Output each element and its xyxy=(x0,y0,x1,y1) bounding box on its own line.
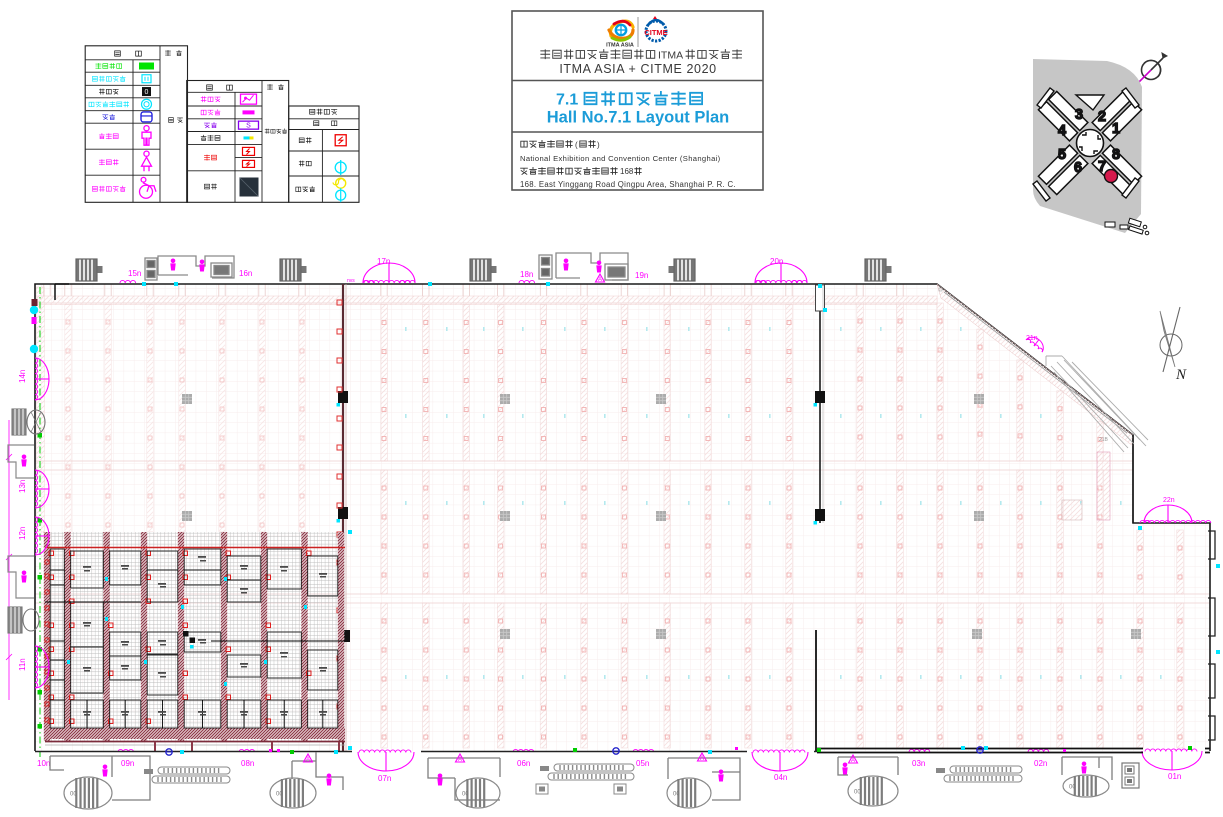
svg-text:8: 8 xyxy=(1112,147,1120,163)
svg-text:3: 3 xyxy=(1075,107,1083,123)
svg-text:168. East Yinggang Road Qingpu: 168. East Yinggang Road Qingpu Area, Sha… xyxy=(520,180,736,189)
svg-text:10n: 10n xyxy=(37,759,50,768)
svg-text:CITME: CITME xyxy=(644,28,667,37)
svg-text:00: 00 xyxy=(673,792,680,798)
svg-text:07n: 07n xyxy=(378,774,391,783)
svg-text:(: ( xyxy=(575,141,578,150)
svg-text:00: 00 xyxy=(854,790,861,796)
svg-text:00: 00 xyxy=(276,792,283,798)
svg-text:0: 0 xyxy=(145,89,149,96)
svg-text:09n: 09n xyxy=(121,759,134,768)
svg-text:6: 6 xyxy=(1074,160,1082,176)
svg-text:21n: 21n xyxy=(1026,335,1038,342)
svg-text:14n: 14n xyxy=(18,370,27,383)
svg-text:National Exhibition and Conven: National Exhibition and Convention Cente… xyxy=(520,154,721,163)
svg-text:7.1: 7.1 xyxy=(556,92,578,109)
svg-text:20n: 20n xyxy=(770,257,783,266)
svg-text:00: 00 xyxy=(1069,785,1076,791)
svg-text:nvs: nvs xyxy=(347,278,355,284)
svg-text:N: N xyxy=(1175,367,1187,383)
svg-text:18n: 18n xyxy=(520,270,533,279)
svg-text:ITMA ASIA + CITME 2020: ITMA ASIA + CITME 2020 xyxy=(559,62,716,76)
svg-text:S: S xyxy=(246,123,251,130)
svg-text:ITMA ASIA: ITMA ASIA xyxy=(606,43,634,49)
svg-text:ITMA: ITMA xyxy=(658,50,683,62)
svg-text:01n: 01n xyxy=(1168,772,1181,781)
svg-text:06n: 06n xyxy=(517,759,530,768)
svg-text:17n: 17n xyxy=(377,257,390,266)
svg-text:02n: 02n xyxy=(1034,759,1047,768)
svg-text:2: 2 xyxy=(1098,109,1106,125)
svg-text:Hall No.7.1 Layout Plan: Hall No.7.1 Layout Plan xyxy=(547,109,729,127)
svg-text:): ) xyxy=(597,141,600,150)
svg-text:1: 1 xyxy=(1112,121,1120,137)
svg-text:00: 00 xyxy=(70,792,77,798)
svg-text:12n: 12n xyxy=(18,527,27,540)
svg-text:168: 168 xyxy=(620,167,634,176)
svg-text:5: 5 xyxy=(1058,147,1066,163)
svg-text:08n: 08n xyxy=(241,759,254,768)
svg-text:15n: 15n xyxy=(128,269,141,278)
svg-text:04n: 04n xyxy=(774,773,787,782)
svg-text:21B: 21B xyxy=(1099,437,1109,443)
svg-text:22n: 22n xyxy=(1163,497,1175,504)
svg-text:00: 00 xyxy=(462,792,469,798)
svg-text:05n: 05n xyxy=(636,759,649,768)
svg-text:19n: 19n xyxy=(635,271,648,280)
svg-text:4: 4 xyxy=(1058,123,1066,139)
svg-text:11n: 11n xyxy=(18,658,27,671)
svg-text:16n: 16n xyxy=(239,269,252,278)
svg-text:03n: 03n xyxy=(912,759,925,768)
svg-text:13n: 13n xyxy=(18,480,27,493)
